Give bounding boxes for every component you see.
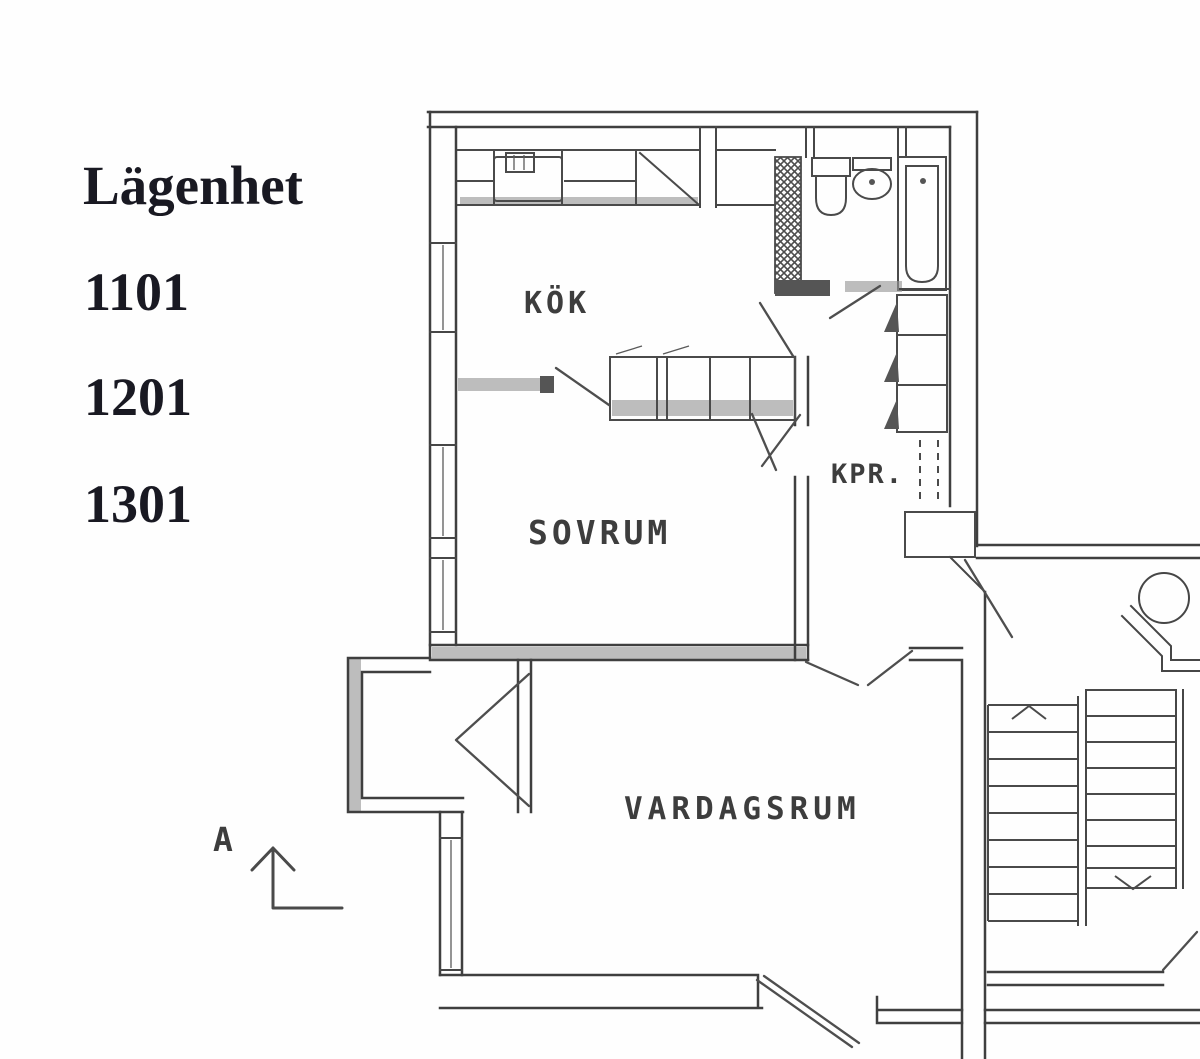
room-label-vardagsrum: VARDAGSRUM: [624, 791, 861, 827]
legend-block: Lägenhet 1101 1201 1301: [83, 155, 304, 534]
stairwell: [985, 573, 1200, 1023]
kpr-closets: [884, 295, 975, 557]
floor-plan-canvas: A KÖK SOVRUM KPR. VARDAGSRUM Lägenhet 11…: [0, 0, 1200, 1059]
stair-center-rail: [1078, 690, 1086, 925]
stair-arrow-up: [1012, 706, 1046, 719]
room-label-kpr: KPR.: [831, 459, 904, 490]
wardrobe-row: [610, 346, 795, 420]
kitchen-sink: [494, 153, 562, 201]
room-label-sovrum: SOVRUM: [528, 513, 671, 552]
stair-flight-left: [988, 705, 1077, 921]
balcony: [348, 658, 531, 812]
wash-basin: [853, 158, 891, 199]
stair-flight-right: [1087, 690, 1183, 889]
apartment-number-1301: 1301: [84, 474, 192, 534]
section-arrow: [252, 848, 342, 908]
screenshot-root: A KÖK SOVRUM KPR. VARDAGSRUM Lägenhet 11…: [0, 0, 1200, 1059]
apartment-number-1101: 1101: [84, 262, 189, 322]
bathtub: [806, 127, 950, 292]
legend-title: Lägenhet: [83, 155, 304, 216]
room-label-kok: KÖK: [524, 284, 590, 321]
toilet: [812, 158, 850, 215]
vent-shaft: [775, 157, 830, 296]
outer-walls: [428, 112, 1200, 1059]
apartment-number-1201: 1201: [84, 367, 192, 427]
section-marker-label: A: [213, 820, 233, 859]
garbage-chute: [1122, 573, 1200, 671]
